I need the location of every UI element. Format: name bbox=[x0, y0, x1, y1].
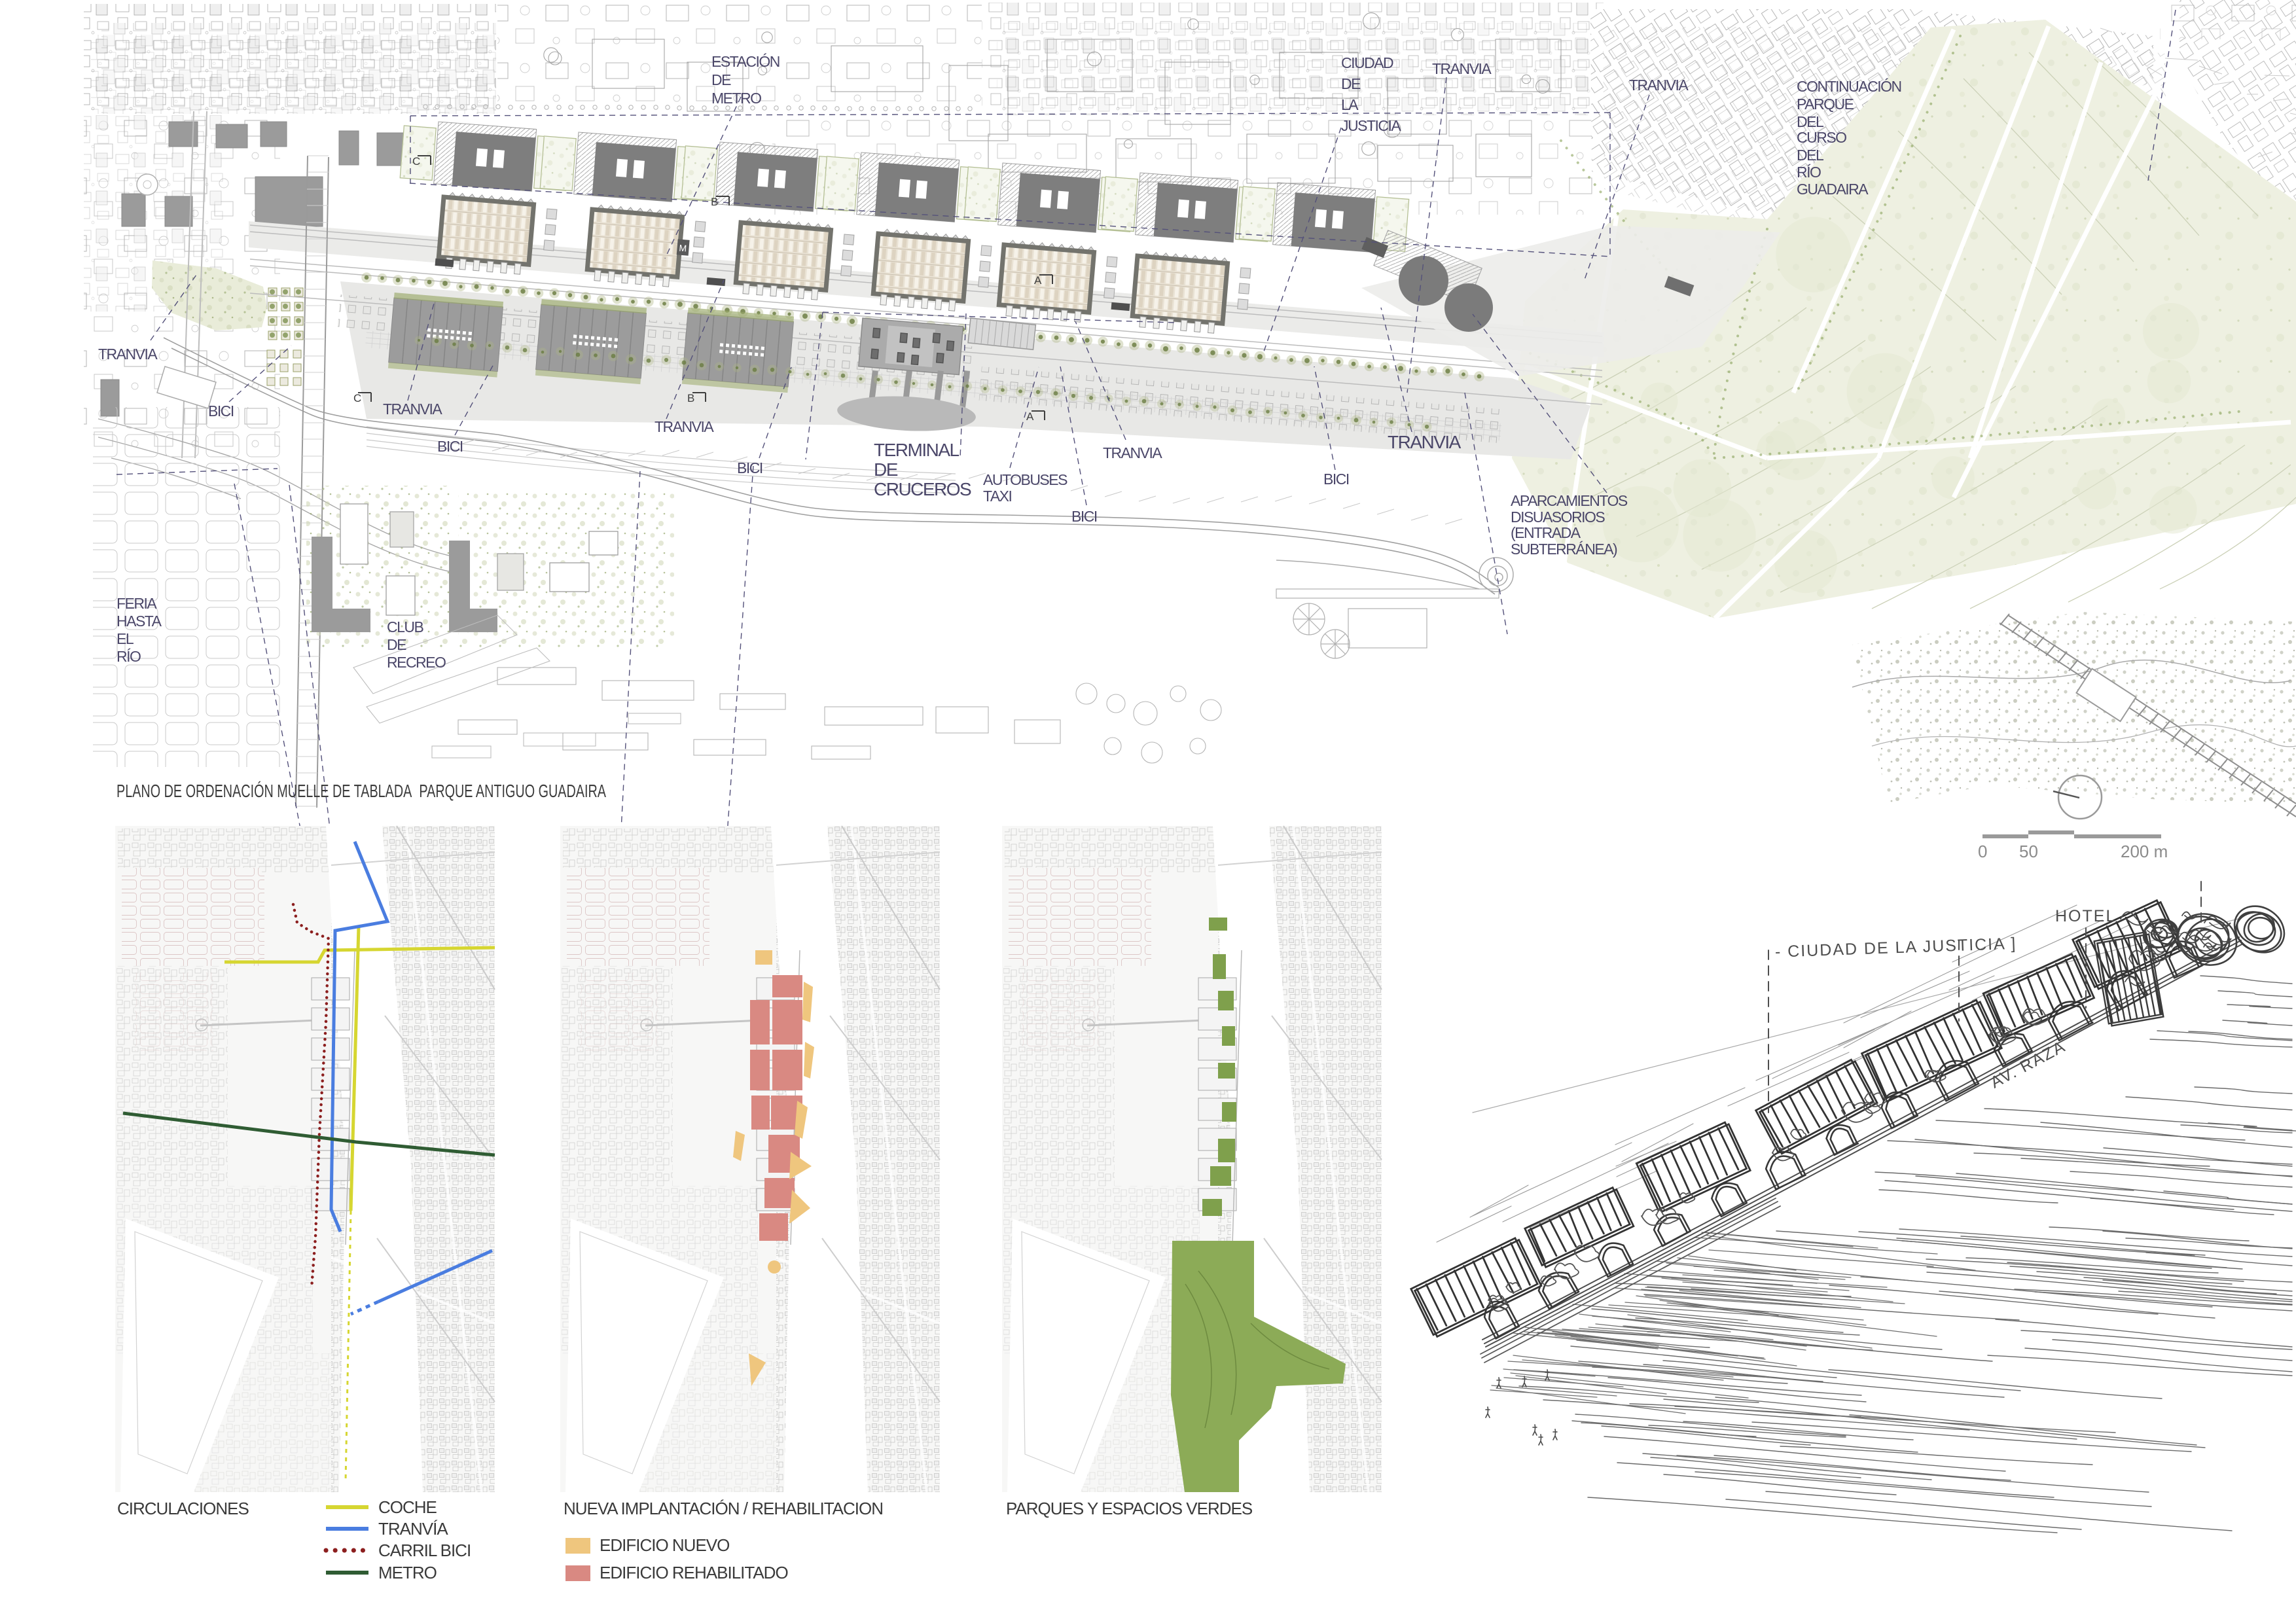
svg-text:RECREO: RECREO bbox=[387, 654, 446, 671]
svg-text:BICI: BICI bbox=[1071, 508, 1097, 525]
svg-text:CIRCULACIONES: CIRCULACIONES bbox=[117, 1499, 249, 1518]
svg-text:M: M bbox=[679, 243, 687, 254]
svg-text:PARQUES Y ESPACIOS VERDES: PARQUES Y ESPACIOS VERDES bbox=[1006, 1499, 1253, 1518]
svg-text:PLANO DE ORDENACIÓN MUELLE DE: PLANO DE ORDENACIÓN MUELLE DE TABLADA PA… bbox=[117, 781, 606, 801]
svg-text:CRUCEROS: CRUCEROS bbox=[874, 479, 971, 499]
svg-text:TRANVIA: TRANVIA bbox=[1388, 432, 1462, 452]
svg-text:EDIFICIO NUEVO: EDIFICIO NUEVO bbox=[600, 1535, 729, 1555]
svg-text:0: 0 bbox=[1978, 842, 1987, 861]
svg-text:BICI: BICI bbox=[1323, 471, 1349, 488]
svg-text:TRANVIA: TRANVIA bbox=[1629, 77, 1689, 94]
svg-text:TRANVIA: TRANVIA bbox=[655, 418, 714, 435]
svg-text:TRANVIA: TRANVIA bbox=[1432, 60, 1492, 77]
svg-text:TRANVIA: TRANVIA bbox=[98, 346, 158, 363]
svg-text:CURSO: CURSO bbox=[1797, 129, 1846, 146]
svg-text:NUEVA IMPLANTACIÓN / REHABILIT: NUEVA IMPLANTACIÓN / REHABILITACION bbox=[564, 1499, 883, 1518]
svg-text:200 m: 200 m bbox=[2121, 842, 2168, 861]
svg-text:DE: DE bbox=[1341, 75, 1361, 92]
svg-text:TRANVIA: TRANVIA bbox=[383, 401, 442, 418]
svg-text:TRANVÍA: TRANVÍA bbox=[378, 1519, 448, 1539]
svg-text:CIUDAD: CIUDAD bbox=[1341, 54, 1393, 71]
svg-text:DEL: DEL bbox=[1797, 113, 1824, 130]
svg-text:TERMINAL: TERMINAL bbox=[874, 440, 960, 460]
svg-text:EL: EL bbox=[117, 630, 134, 647]
svg-text:HOTEL: HOTEL bbox=[2055, 907, 2116, 925]
svg-text:JUSTICIA: JUSTICIA bbox=[1341, 117, 1401, 134]
svg-text:APARCAMIENTOS: APARCAMIENTOS bbox=[1511, 492, 1628, 509]
svg-text:C: C bbox=[353, 392, 361, 404]
svg-text:EDIFICIO REHABILITADO: EDIFICIO REHABILITADO bbox=[600, 1563, 788, 1582]
svg-text:CONTINUACIÓN: CONTINUACIÓN bbox=[1797, 78, 1901, 95]
svg-text:SUBTERRÁNEA): SUBTERRÁNEA) bbox=[1511, 541, 1617, 558]
svg-text:DE: DE bbox=[711, 71, 731, 88]
svg-text:DISUASORIOS: DISUASORIOS bbox=[1511, 508, 1605, 526]
svg-text:ESTACIÓN: ESTACIÓN bbox=[711, 53, 780, 70]
svg-text:AUTOBUSES: AUTOBUSES bbox=[983, 471, 1067, 488]
svg-text:COCHE: COCHE bbox=[378, 1497, 437, 1517]
svg-text:RÍO: RÍO bbox=[1797, 164, 1821, 181]
svg-text:HASTA: HASTA bbox=[117, 613, 162, 630]
svg-text:A: A bbox=[1034, 274, 1042, 287]
svg-text:METRO: METRO bbox=[378, 1563, 437, 1582]
svg-text:B: B bbox=[711, 196, 718, 208]
svg-text:C: C bbox=[412, 155, 420, 168]
svg-text:BICI: BICI bbox=[437, 438, 463, 455]
svg-text:METRO: METRO bbox=[711, 90, 761, 107]
svg-text:(ENTRADA: (ENTRADA bbox=[1511, 524, 1581, 541]
svg-text:TRANVIA: TRANVIA bbox=[1103, 444, 1162, 461]
svg-text:DEL: DEL bbox=[1797, 147, 1824, 164]
svg-text:FERIA: FERIA bbox=[117, 595, 157, 612]
svg-text:CLUB: CLUB bbox=[387, 618, 424, 635]
svg-text:PARQUE: PARQUE bbox=[1797, 96, 1854, 113]
svg-text:GUADAIRA: GUADAIRA bbox=[1797, 181, 1869, 198]
svg-text:CARRIL BICI: CARRIL BICI bbox=[378, 1541, 471, 1560]
svg-text:B: B bbox=[687, 392, 694, 404]
svg-text:BICI: BICI bbox=[208, 402, 234, 419]
svg-text:DE: DE bbox=[874, 459, 898, 480]
svg-text:TAXI: TAXI bbox=[983, 488, 1012, 505]
svg-text:RÍO: RÍO bbox=[117, 648, 141, 665]
svg-text:A: A bbox=[1026, 410, 1034, 423]
svg-text:50: 50 bbox=[2019, 842, 2038, 861]
svg-text:DE: DE bbox=[387, 636, 406, 653]
svg-text:BICI: BICI bbox=[737, 459, 762, 476]
svg-text:LA: LA bbox=[1341, 96, 1359, 113]
